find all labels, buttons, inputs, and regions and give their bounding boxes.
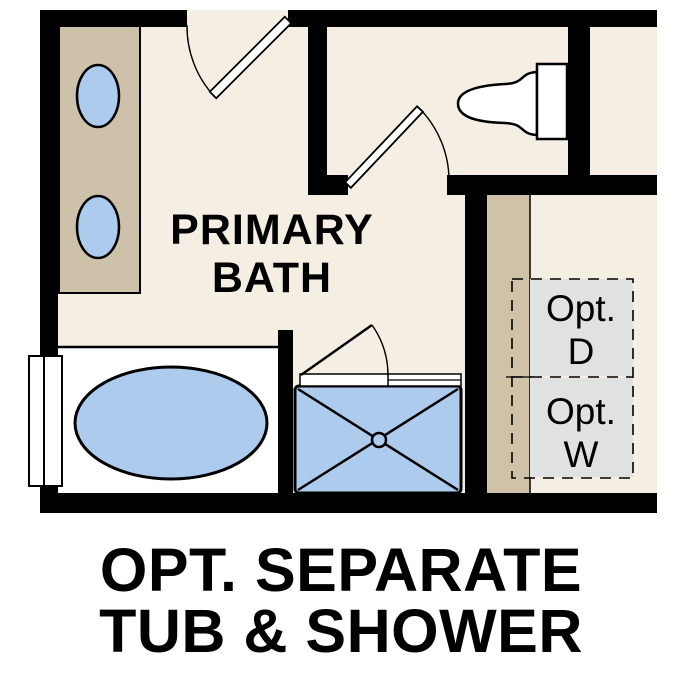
wall-wc-right [568,27,590,175]
shower-drain-icon [372,433,386,447]
window-icon [29,356,62,486]
caption-line2: TUB & SHOWER [99,597,583,665]
caption-line1: OPT. SEPARATE [100,536,582,604]
wall-tub-shower-divider [278,330,293,493]
floor-plan: Opt. D Opt. W [0,0,687,687]
tub-area [58,347,278,493]
opt-washer-label-line2: W [564,434,599,475]
toilet-tank [537,64,567,139]
tub-basin-icon [75,367,267,479]
primary-bath-label-line2: BATH [212,254,332,302]
wall-mid-stub [308,175,348,195]
wall-left-upper [40,10,58,356]
opt-dryer-label-line2: D [568,331,595,372]
sink-top-icon [77,65,119,127]
wall-mid-long [447,175,657,195]
primary-bath-label-line1: PRIMARY [170,206,374,254]
sink-bottom-icon [77,196,119,258]
opt-washer-label-line1: Opt. [546,391,616,432]
wall-laundry-vertical [465,195,487,493]
wall-top-left [40,10,187,27]
window-frame [29,356,62,486]
caption: OPT. SEPARATE TUB & SHOWER [99,536,583,665]
wall-top-right [288,10,657,27]
plumbing-chase [487,195,530,493]
opt-dryer-label-line1: Opt. [546,288,616,329]
floor-plan-page: Opt. D Opt. W [0,0,687,687]
wall-wc-left [308,27,327,175]
wall-bottom [40,493,657,513]
vanity-counter [59,26,140,293]
